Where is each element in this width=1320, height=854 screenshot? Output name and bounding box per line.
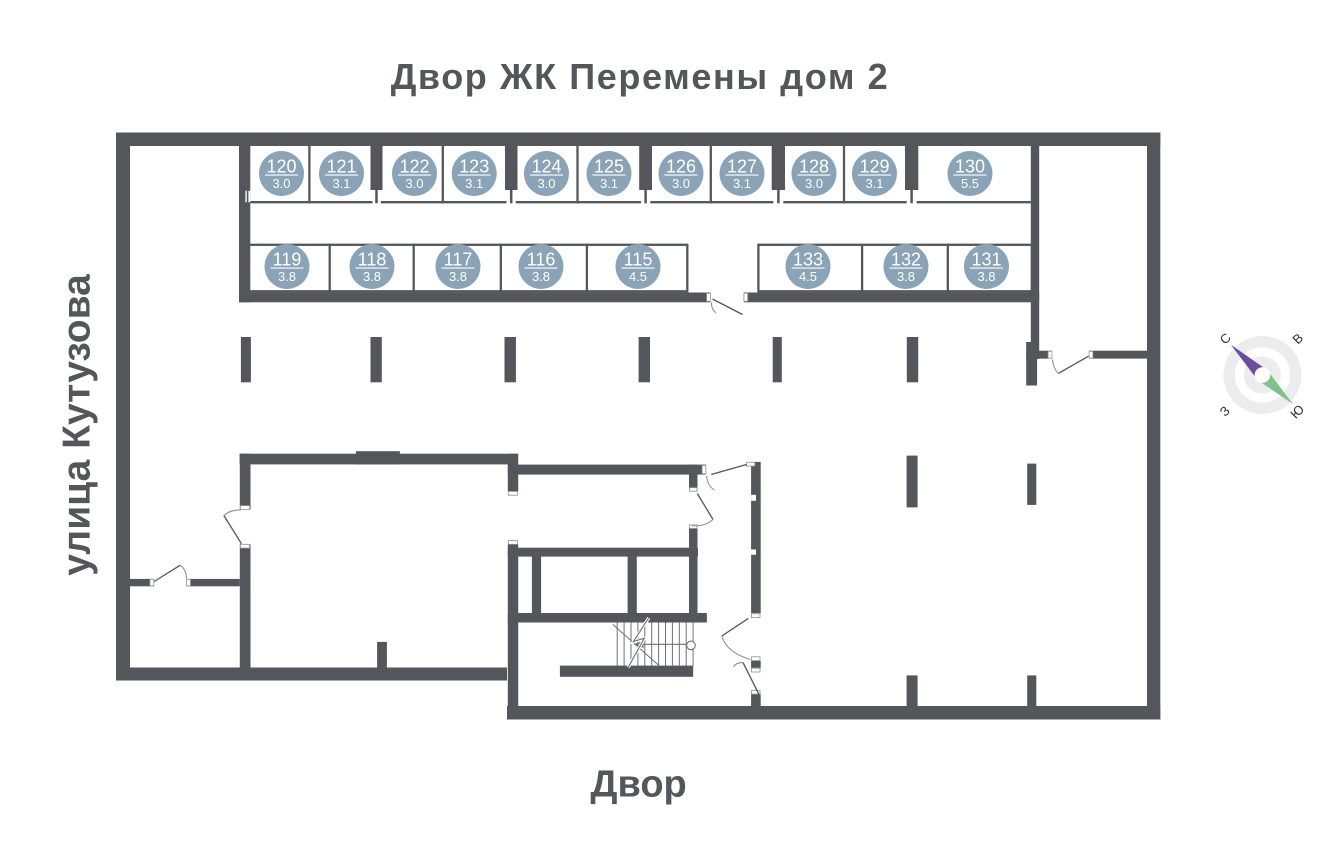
svg-text:132: 132 [891, 250, 921, 270]
svg-text:Двор: Двор [590, 764, 686, 806]
svg-text:115: 115 [624, 250, 653, 270]
svg-text:3.1: 3.1 [600, 176, 618, 191]
svg-text:3.8: 3.8 [977, 269, 995, 284]
svg-text:128: 128 [799, 157, 829, 177]
svg-text:120: 120 [266, 157, 296, 177]
svg-text:3.0: 3.0 [272, 176, 290, 191]
svg-text:В: В [1289, 330, 1306, 347]
svg-text:123: 123 [459, 157, 489, 177]
svg-text:127: 127 [727, 157, 757, 177]
svg-text:3.1: 3.1 [865, 176, 883, 191]
svg-text:133: 133 [793, 250, 823, 270]
svg-text:130: 130 [955, 157, 985, 177]
svg-text:3.8: 3.8 [897, 269, 915, 284]
svg-text:С: С [1217, 330, 1234, 347]
svg-text:119: 119 [273, 250, 302, 270]
svg-text:121: 121 [326, 157, 356, 177]
svg-text:3.8: 3.8 [363, 269, 381, 284]
svg-text:З: З [1217, 403, 1233, 419]
svg-text:Двор ЖК Перемены дом 2: Двор ЖК Перемены дом 2 [391, 56, 890, 97]
svg-text:3.8: 3.8 [449, 269, 467, 284]
svg-text:4.5: 4.5 [799, 269, 817, 284]
svg-text:5.5: 5.5 [961, 176, 979, 191]
svg-text:улица Кутузова: улица Кутузова [56, 274, 99, 576]
svg-text:3.0: 3.0 [805, 176, 823, 191]
svg-text:3.0: 3.0 [672, 176, 690, 191]
svg-text:124: 124 [531, 157, 561, 177]
svg-text:3.1: 3.1 [465, 176, 483, 191]
svg-text:131: 131 [971, 250, 1001, 270]
svg-text:4.5: 4.5 [629, 269, 647, 284]
svg-text:3.8: 3.8 [278, 269, 296, 284]
svg-text:129: 129 [859, 157, 889, 177]
svg-text:3.8: 3.8 [532, 269, 550, 284]
svg-text:125: 125 [594, 157, 624, 177]
svg-text:126: 126 [666, 157, 696, 177]
svg-text:122: 122 [399, 157, 429, 177]
svg-text:118: 118 [358, 250, 387, 270]
svg-text:3.0: 3.0 [537, 176, 555, 191]
svg-text:3.1: 3.1 [332, 176, 350, 191]
svg-text:116: 116 [527, 250, 556, 270]
svg-text:117: 117 [444, 250, 473, 270]
svg-text:3.0: 3.0 [405, 176, 423, 191]
svg-text:3.1: 3.1 [733, 176, 751, 191]
svg-text:Ю: Ю [1287, 402, 1307, 422]
